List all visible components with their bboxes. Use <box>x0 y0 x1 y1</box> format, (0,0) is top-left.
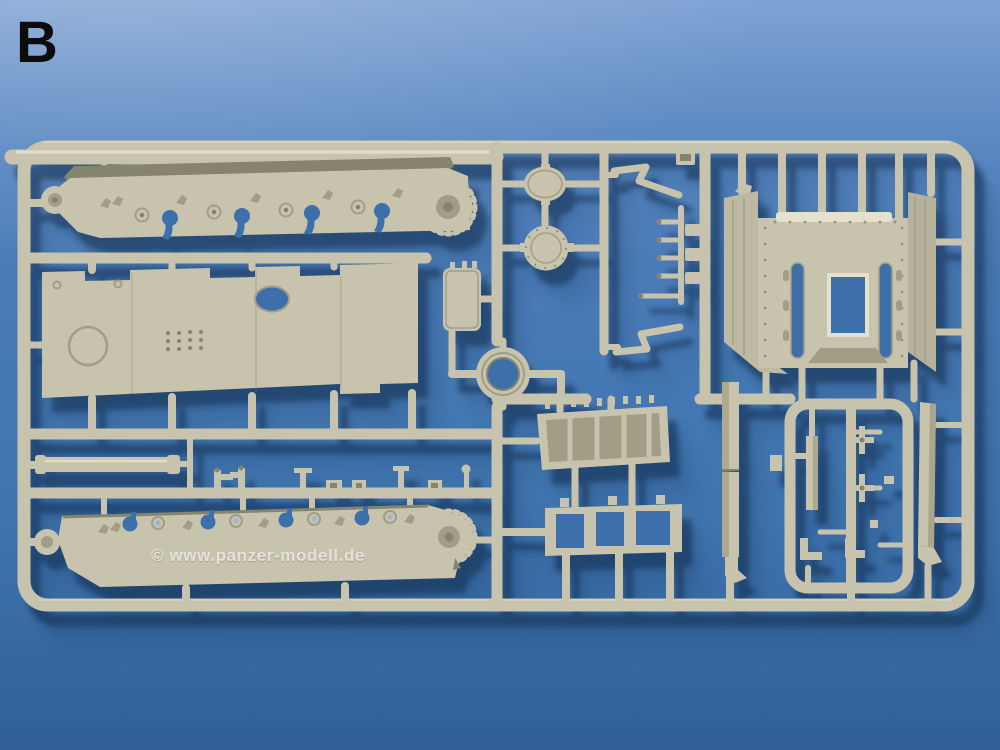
gun-cylinder <box>35 455 180 474</box>
open-frame-part <box>545 495 682 556</box>
watermark-text: © www.panzer-modell.de <box>151 546 365 566</box>
skirt-strip-left <box>722 382 747 583</box>
photo-model-kit-sprue: B © www.panzer-modell.de <box>0 0 1000 750</box>
oval-hatch <box>524 164 566 205</box>
rear-plate-assembly <box>724 183 936 374</box>
hull-roof-panel <box>42 263 418 398</box>
z-bracket-top <box>614 167 679 195</box>
sprue-letter: B <box>16 14 59 72</box>
sprue-b <box>0 0 1000 750</box>
hull-side-upper <box>41 157 475 240</box>
turret-ring <box>476 347 530 401</box>
access-panel-small <box>443 261 481 331</box>
round-hatch <box>520 226 574 271</box>
z-bracket-bottom <box>616 327 680 352</box>
